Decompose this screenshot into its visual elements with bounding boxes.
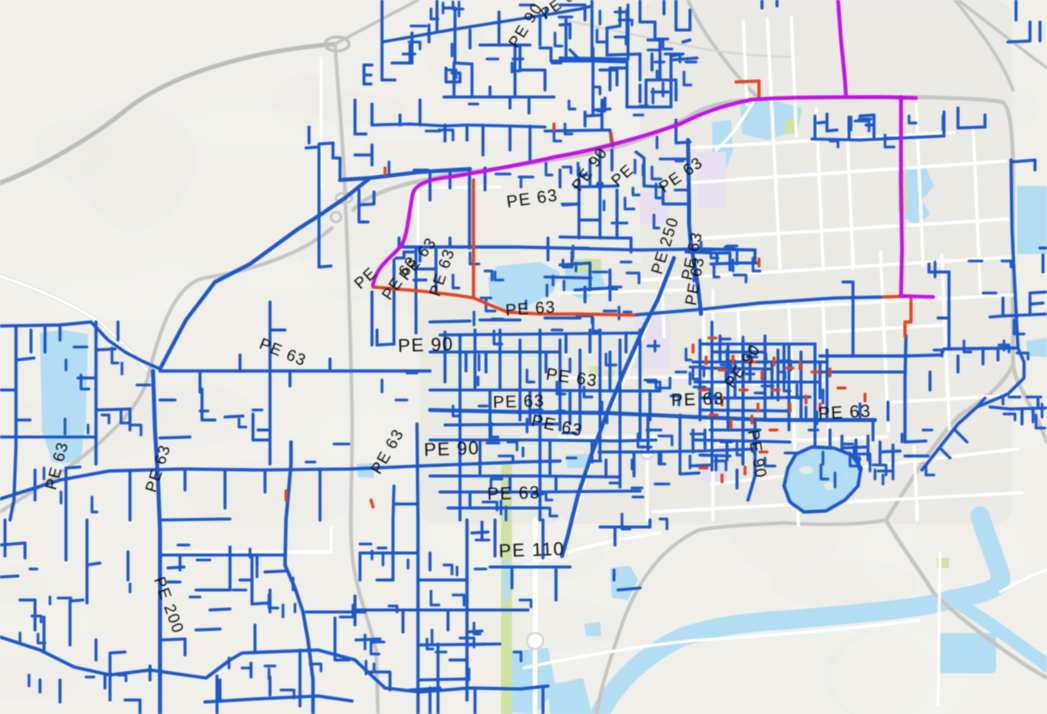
svg-text:PE 90: PE 90: [397, 333, 454, 356]
svg-text:PE 63: PE 63: [493, 391, 545, 412]
svg-text:PE 63: PE 63: [487, 482, 541, 504]
svg-text:PE 63: PE 63: [818, 401, 872, 424]
svg-text:PE 90: PE 90: [423, 437, 480, 460]
svg-text:PE 63: PE 63: [505, 298, 557, 319]
svg-text:PE 63: PE 63: [671, 388, 725, 410]
svg-text:PE 110: PE 110: [498, 538, 565, 561]
